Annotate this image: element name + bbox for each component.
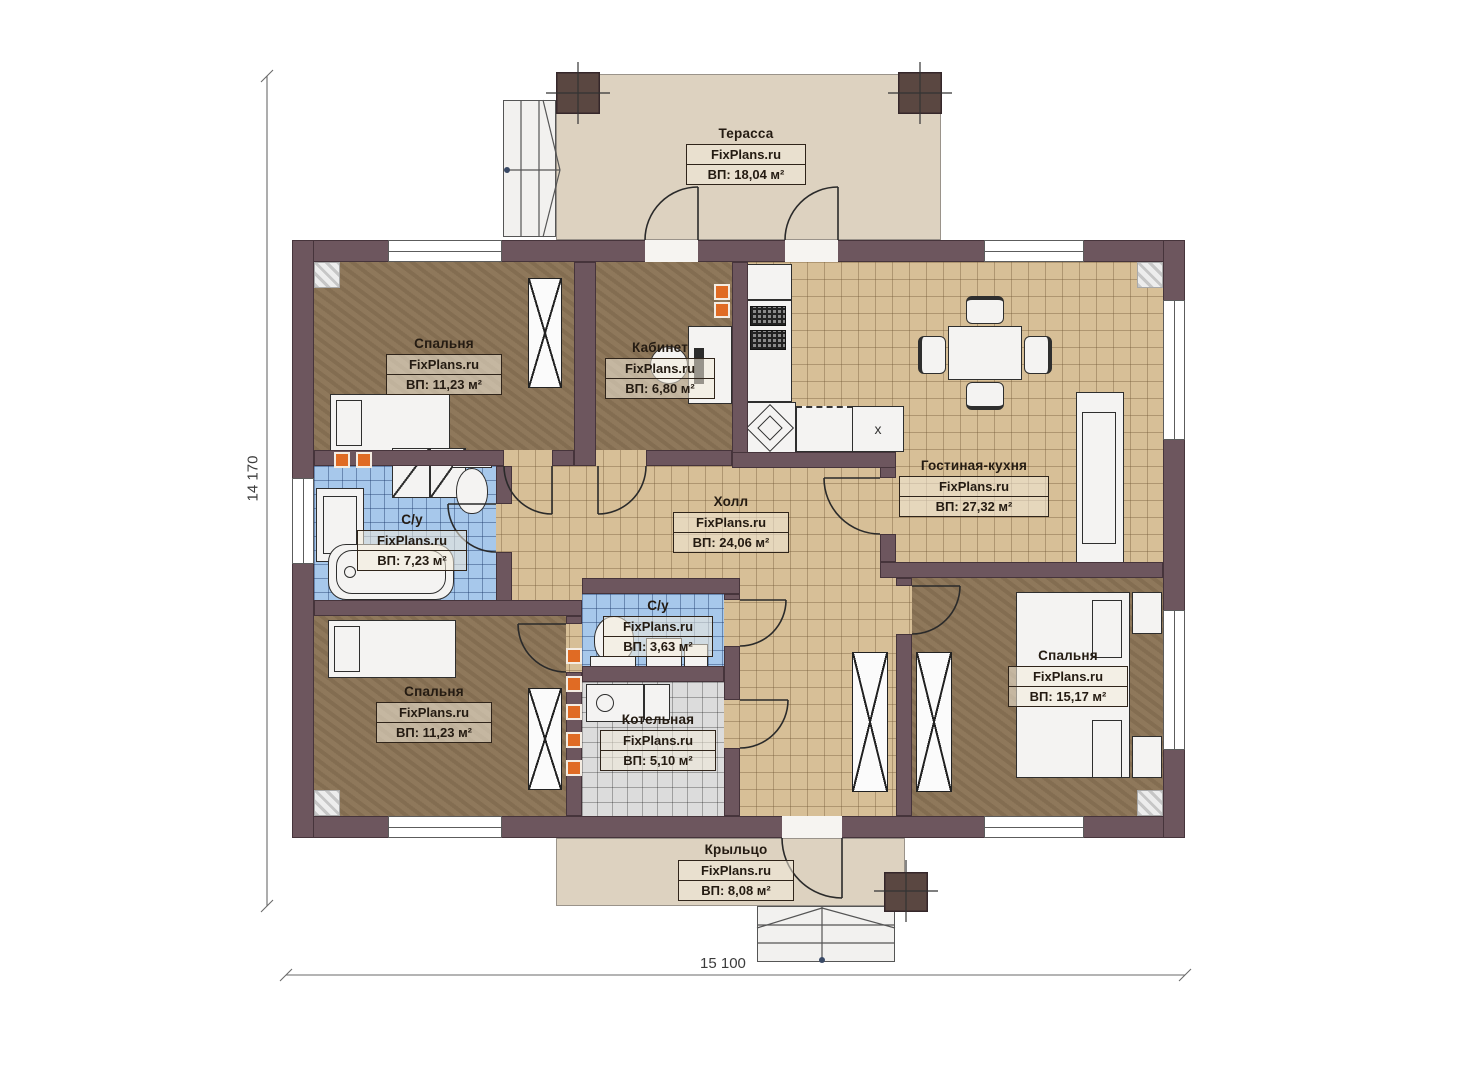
floor-plan-canvas: x xyxy=(0,0,1473,1080)
corner-hatch-bottom-left xyxy=(314,790,340,816)
stove-burners-top xyxy=(750,306,786,326)
room-name: С/у xyxy=(357,512,467,527)
bed-pillow-top xyxy=(336,400,362,446)
room-label-bedroom-bottom-left: Спальня FixPlans.ru ВП: 11,23 м² xyxy=(376,684,492,743)
room-brand: FixPlans.ru xyxy=(687,145,805,164)
dining-chair-bottom xyxy=(966,382,1004,410)
room-area: ВП: 15,17 м² xyxy=(1009,686,1127,706)
room-info-box: FixPlans.ru ВП: 27,32 м² xyxy=(899,476,1049,517)
room-brand: FixPlans.ru xyxy=(674,513,788,532)
radiator-marker-kitchen-1 xyxy=(714,284,730,300)
porch-steps xyxy=(757,906,895,962)
window-bedroomTL xyxy=(388,240,502,262)
window-living-top xyxy=(984,240,1084,262)
room-brand: FixPlans.ru xyxy=(604,617,712,636)
room-area: ВП: 11,23 м² xyxy=(387,374,501,394)
dining-table xyxy=(948,326,1022,380)
room-info-box: FixPlans.ru ВП: 7,23 м² xyxy=(357,530,467,571)
dimension-label-height: 14 170 xyxy=(244,456,261,502)
wall-bedroomBR-stub xyxy=(896,578,912,586)
dining-chair-top xyxy=(966,296,1004,324)
terrace-door-opening-1 xyxy=(645,240,698,262)
corner-hatch-top-right xyxy=(1137,262,1163,288)
wall-bedroomBR-hall xyxy=(896,634,912,816)
radiator-marker-bath-2 xyxy=(356,452,372,468)
room-label-bedroom-right: Спальня FixPlans.ru ВП: 15,17 м² xyxy=(1008,648,1128,707)
room-name: Крыльцо xyxy=(678,842,794,857)
terrace-column-right xyxy=(898,72,942,114)
room-area: ВП: 6,80 м² xyxy=(606,378,714,398)
room-name: Спальня xyxy=(1008,648,1128,663)
dining-chair-right xyxy=(1024,336,1052,374)
bathtub-drain xyxy=(344,566,356,578)
room-info-box: FixPlans.ru ВП: 11,23 м² xyxy=(386,354,502,395)
radiator-marker-boiler-2 xyxy=(566,676,582,692)
window-living-right xyxy=(1163,300,1185,440)
stove-burners-bottom xyxy=(750,330,786,350)
porch-column xyxy=(884,872,928,912)
dim-tick-left-bottom xyxy=(261,900,273,912)
dimension-label-width: 15 100 xyxy=(700,955,746,972)
room-area: ВП: 27,32 м² xyxy=(900,496,1048,516)
room-area: ВП: 18,04 м² xyxy=(687,164,805,184)
corner-hatch-bottom-right xyxy=(1137,790,1163,816)
room-area: ВП: 3,63 м² xyxy=(604,636,712,656)
corner-hatch-top-left xyxy=(314,262,340,288)
room-label-porch: Крыльцо FixPlans.ru ВП: 8,08 м² xyxy=(678,842,794,901)
window-bathroom-left xyxy=(292,478,314,564)
radiator-marker-boiler-5 xyxy=(566,760,582,776)
sofa-seat xyxy=(1082,412,1116,544)
room-info-box: FixPlans.ru ВП: 8,08 м² xyxy=(678,860,794,901)
room-name: Кабинет xyxy=(605,340,715,355)
nightstand-2 xyxy=(1132,736,1162,778)
wall-bath-hall-upper xyxy=(496,466,512,504)
room-label-boiler-room: Котельная FixPlans.ru ВП: 5,10 м² xyxy=(600,712,716,771)
room-area: ВП: 5,10 м² xyxy=(601,750,715,770)
room-area: ВП: 24,06 м² xyxy=(674,532,788,552)
nightstand-1 xyxy=(1132,592,1162,634)
bed-double-pillow-2 xyxy=(1092,720,1122,778)
room-brand: FixPlans.ru xyxy=(679,861,793,880)
dining-chair-left xyxy=(918,336,946,374)
wall-bathSmall-boiler xyxy=(582,666,724,682)
terrace-door-opening-2 xyxy=(785,240,838,262)
terrace-steps xyxy=(503,100,556,237)
radiator-marker-boiler-3 xyxy=(566,704,582,720)
vent-shaft-hall xyxy=(852,652,888,792)
wall-bathSmall-top xyxy=(582,578,740,594)
room-info-box: FixPlans.ru ВП: 18,04 м² xyxy=(686,144,806,185)
dim-tick-left-top xyxy=(261,70,273,82)
porch-door-opening xyxy=(782,816,842,838)
room-brand: FixPlans.ru xyxy=(601,731,715,750)
dishwasher-mark: x xyxy=(875,421,882,437)
room-info-box: FixPlans.ru ВП: 6,80 м² xyxy=(605,358,715,399)
room-brand: FixPlans.ru xyxy=(377,703,491,722)
room-label-living-kitchen: Гостиная-кухня FixPlans.ru ВП: 27,32 м² xyxy=(899,458,1049,517)
room-brand: FixPlans.ru xyxy=(606,359,714,378)
room-brand: FixPlans.ru xyxy=(900,477,1048,496)
kitchen-fridge xyxy=(744,264,792,300)
bed-pillow-bottom xyxy=(334,626,360,672)
boiler-dial xyxy=(596,694,614,712)
room-area: ВП: 11,23 м² xyxy=(377,722,491,742)
room-info-box: FixPlans.ru ВП: 3,63 м² xyxy=(603,616,713,657)
wall-bedroomTL-stub xyxy=(552,450,574,466)
wall-bathSmall-hall-b xyxy=(724,646,740,700)
room-label-office: Кабинет FixPlans.ru ВП: 6,80 м² xyxy=(605,340,715,399)
wall-living-bedroomBR xyxy=(880,562,1163,578)
radiator-marker-boiler-4 xyxy=(566,732,582,748)
wall-bath-bedroomBL xyxy=(314,600,582,616)
room-area: ВП: 8,08 м² xyxy=(679,880,793,900)
room-info-box: FixPlans.ru ВП: 24,06 м² xyxy=(673,512,789,553)
wall-hall-living-b xyxy=(880,534,896,562)
room-info-box: FixPlans.ru ВП: 5,10 м² xyxy=(600,730,716,771)
terrace-column-left xyxy=(556,72,600,114)
room-brand: FixPlans.ru xyxy=(1009,667,1127,686)
room-brand: FixPlans.ru xyxy=(358,531,466,550)
dim-tick-bottom-right xyxy=(1179,969,1191,981)
room-name: Холл xyxy=(673,494,789,509)
room-name: Котельная xyxy=(600,712,716,727)
wall-office-kitchen xyxy=(732,262,748,466)
window-bedroomBR-bottom xyxy=(984,816,1084,838)
room-label-bedroom-top-left: Спальня FixPlans.ru ВП: 11,23 м² xyxy=(386,336,502,395)
room-info-box: FixPlans.ru ВП: 11,23 м² xyxy=(376,702,492,743)
room-name: Спальня xyxy=(386,336,502,351)
vent-shaft-bedroomBL xyxy=(528,688,562,790)
vent-shaft-bedroomBR xyxy=(916,652,952,792)
toilet-main-bowl xyxy=(456,468,488,514)
wall-kitchen-hall xyxy=(732,452,896,468)
radiator-marker-bath-1 xyxy=(334,452,350,468)
room-area: ВП: 7,23 м² xyxy=(358,550,466,570)
radiator-marker-kitchen-2 xyxy=(714,302,730,318)
room-name: С/у xyxy=(603,598,713,613)
kitchen-dishwasher: x xyxy=(852,406,904,452)
room-brand: FixPlans.ru xyxy=(387,355,501,374)
wall-boiler-hall xyxy=(724,748,740,816)
room-name: Терасса xyxy=(686,126,806,141)
window-bedroomBL xyxy=(388,816,502,838)
room-name: Гостиная-кухня xyxy=(899,458,1049,473)
dim-tick-bottom-left xyxy=(280,969,292,981)
wall-bedroomBL-stub xyxy=(566,616,582,624)
wall-bathSmall-hall-a xyxy=(724,594,740,600)
room-label-hall: Холл FixPlans.ru ВП: 24,06 м² xyxy=(673,494,789,553)
radiator-marker-boiler-1 xyxy=(566,648,582,664)
wall-bedroomTL-office xyxy=(574,262,596,466)
room-label-terrace: Терасса FixPlans.ru ВП: 18,04 м² xyxy=(686,126,806,185)
room-label-bathroom-small: С/у FixPlans.ru ВП: 3,63 м² xyxy=(603,598,713,657)
room-info-box: FixPlans.ru ВП: 15,17 м² xyxy=(1008,666,1128,707)
window-bedroomBR-right xyxy=(1163,610,1185,750)
room-label-bathroom-main: С/у FixPlans.ru ВП: 7,23 м² xyxy=(357,512,467,571)
room-name: Спальня xyxy=(376,684,492,699)
wall-office-hall xyxy=(646,450,732,466)
vent-shaft-bedroomTL xyxy=(528,278,562,388)
